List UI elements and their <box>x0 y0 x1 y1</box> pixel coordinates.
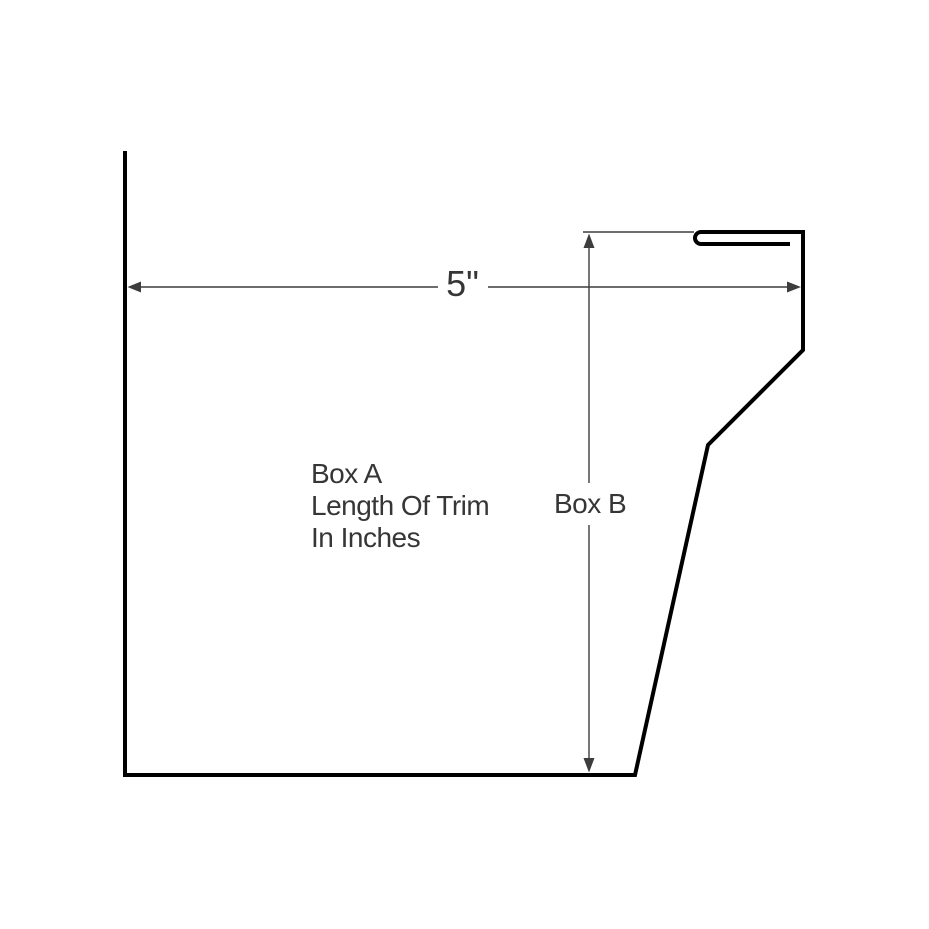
box-a-label: Box A Length Of Trim In Inches <box>311 458 489 554</box>
arrowhead-down-icon <box>584 758 595 773</box>
box-a-label-line2: Length Of Trim <box>311 490 489 522</box>
arrowhead-right-icon <box>787 282 801 293</box>
box-a-label-line3: In Inches <box>311 522 489 554</box>
arrowhead-left-icon <box>128 282 142 293</box>
width-dimension-label: 5" <box>430 266 495 302</box>
arrowhead-up-icon <box>584 234 595 249</box>
box-b-dimension-label: Box B <box>554 490 626 518</box>
box-a-label-line1: Box A <box>311 458 489 490</box>
diagram-canvas: Box A Length Of Trim In Inches Box B 5" <box>0 0 929 929</box>
